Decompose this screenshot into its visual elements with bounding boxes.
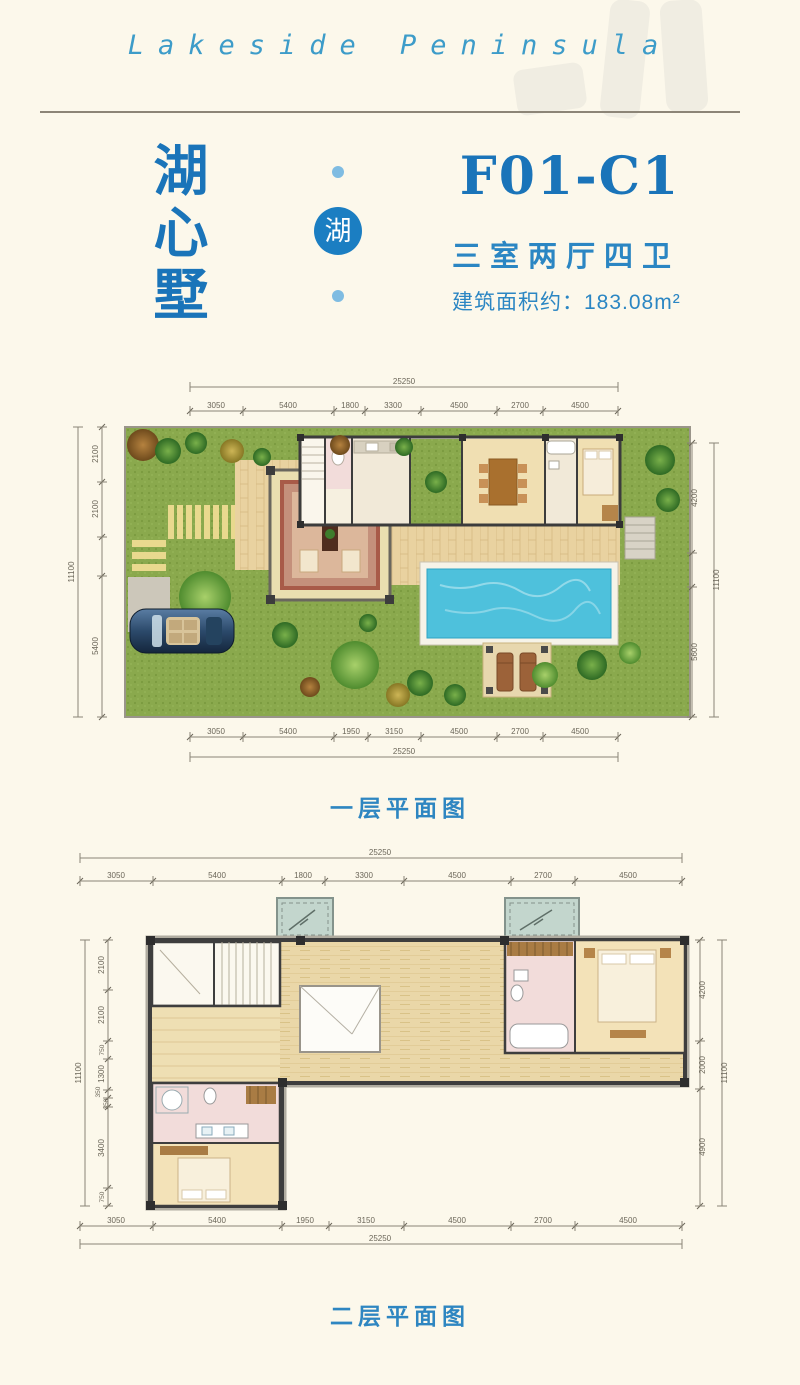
dim-label: 1950 xyxy=(342,727,360,736)
tree-icon xyxy=(330,435,350,455)
dim-total: 25250 xyxy=(369,848,392,857)
floor1-plan: 25250 3050 5400 1800 3300 4500 2700 4500… xyxy=(0,365,800,790)
tree-icon xyxy=(656,488,680,512)
dim-label: 4500 xyxy=(619,1216,637,1225)
dim-label: 350 xyxy=(103,1098,110,1109)
bedroom-suite-left xyxy=(152,1083,280,1206)
dim-label: 3400 xyxy=(97,1139,106,1157)
dim-label: 4500 xyxy=(448,1216,466,1225)
poster-page: Lakeside Peninsula 湖 心 墅 湖 F01-C1 三室两厅四卫… xyxy=(0,0,800,1385)
dim-label: 5400 xyxy=(208,871,226,880)
lake-badge-icon: 湖 xyxy=(314,207,362,255)
dim-label: 5400 xyxy=(91,637,100,655)
dim-label: 2700 xyxy=(511,727,529,736)
dim-label: 3050 xyxy=(107,871,125,880)
dim-label: 3050 xyxy=(107,1216,125,1225)
dim-label: 1800 xyxy=(294,871,312,880)
sink-icon xyxy=(514,970,528,981)
tree-icon xyxy=(155,438,181,464)
dim-label: 4900 xyxy=(698,1138,707,1156)
tree-icon xyxy=(272,622,298,648)
dim-label: 2100 xyxy=(97,956,106,974)
dim-total: 11100 xyxy=(720,1062,729,1084)
dim-label: 2700 xyxy=(511,401,529,410)
dim-label: 750 xyxy=(99,1191,106,1202)
dim-label: 2700 xyxy=(534,1216,552,1225)
dim-label: 5400 xyxy=(208,1216,226,1225)
wardrobe xyxy=(507,942,573,956)
dimension-lines-top: 25250 3050 5400 1800 3300 4500 2700 4500 xyxy=(77,848,685,886)
tree-icon xyxy=(444,684,466,706)
estate-name-vertical: 湖 心 墅 xyxy=(149,140,213,326)
dim-label: 5400 xyxy=(279,401,297,410)
bedroom-suite-right xyxy=(505,940,685,1053)
tv-cabinet xyxy=(160,1146,208,1155)
dim-label: 1800 xyxy=(341,401,359,410)
brand-title: Lakeside Peninsula xyxy=(0,30,800,61)
plant-icon xyxy=(325,529,335,539)
dim-label: 2000 xyxy=(698,1056,707,1074)
tree-icon xyxy=(185,432,207,454)
dim-label: 4500 xyxy=(448,871,466,880)
dimension-lines-right: 4200 2000 4900 11100 xyxy=(695,937,729,1209)
tree-icon xyxy=(127,429,159,461)
tree-icon xyxy=(407,670,433,696)
dim-label: 3150 xyxy=(357,1216,375,1225)
tree-icon xyxy=(359,614,377,632)
dim-label: 2100 xyxy=(91,500,100,518)
header-divider xyxy=(40,111,740,113)
bathtub-icon xyxy=(510,1024,568,1048)
floor1-caption: 一层平面图 xyxy=(0,789,800,823)
dim-label: 350 xyxy=(95,1086,102,1097)
dim-label: 750 xyxy=(99,1044,106,1055)
tree-icon xyxy=(619,642,641,664)
unit-code: F01-C1 xyxy=(448,146,692,207)
dim-label: 1950 xyxy=(296,1216,314,1225)
dimension-lines-right: 4200 5600 11100 xyxy=(687,440,721,720)
tree-icon xyxy=(220,439,244,463)
estate-name-char: 心 xyxy=(149,202,213,264)
dimension-lines-bottom: 3050 5400 1950 3150 4500 2700 4500 25250 xyxy=(187,727,621,762)
floor2-plan: 25250 3050 5400 1800 3300 4500 2700 4500… xyxy=(0,838,800,1273)
dim-label: 3300 xyxy=(384,401,402,410)
dim-label: 5400 xyxy=(279,727,297,736)
tree-icon xyxy=(300,677,320,697)
dim-label: 2100 xyxy=(91,445,100,463)
void-opening xyxy=(300,986,380,1052)
dimension-lines-left: 11100 2100 2100 5400 xyxy=(67,424,107,720)
dim-label: 4500 xyxy=(619,871,637,880)
tree-icon xyxy=(645,445,675,475)
building-area-text: 建筑面积约：183.08m² xyxy=(452,286,712,316)
swimming-pool xyxy=(420,562,618,645)
dim-total: 11100 xyxy=(74,1062,83,1084)
dim-label: 3050 xyxy=(207,401,225,410)
dining-room xyxy=(462,439,545,525)
estate-name-char: 墅 xyxy=(149,264,213,326)
toilet-icon xyxy=(204,1088,216,1104)
dim-label: 1300 xyxy=(97,1065,106,1083)
decorative-dot xyxy=(332,290,344,302)
staircase xyxy=(302,439,325,523)
car-icon xyxy=(130,609,234,653)
dim-label: 2100 xyxy=(97,1006,106,1024)
toilet-icon xyxy=(511,985,523,1001)
dim-total: 25250 xyxy=(393,377,416,386)
dimension-lines-bottom: 3050 5400 1950 3150 4500 2700 4500 25250 xyxy=(77,1216,685,1249)
skylight-icon xyxy=(505,898,579,940)
dim-total: 11100 xyxy=(67,561,76,583)
dimension-lines-top: 25250 3050 5400 1800 3300 4500 2700 4500 xyxy=(187,377,621,416)
skylight-icon xyxy=(277,898,333,940)
estate-name-char: 湖 xyxy=(149,140,213,202)
room-layout-text: 三室两厅四卫 xyxy=(452,233,692,275)
floor2-caption: 二层平面图 xyxy=(0,1297,800,1331)
dim-label: 5600 xyxy=(690,643,699,661)
dim-label: 3300 xyxy=(355,871,373,880)
dim-label: 4500 xyxy=(450,727,468,736)
tree-icon xyxy=(386,683,410,707)
tree-icon xyxy=(253,448,271,466)
dim-total: 11100 xyxy=(712,569,721,591)
watermark-figure xyxy=(512,61,588,116)
bathroom-2 xyxy=(545,439,577,525)
tree-icon xyxy=(331,641,379,689)
dim-total: 25250 xyxy=(393,747,416,756)
dim-total: 25250 xyxy=(369,1234,392,1243)
dim-label: 4500 xyxy=(571,727,589,736)
tree-icon xyxy=(577,650,607,680)
dim-label: 4200 xyxy=(690,489,699,507)
inner-courtyard xyxy=(410,439,462,525)
dimension-lines-left: 11100 2100 2100 750 1300 350 350 3400 75… xyxy=(74,937,113,1209)
dim-label: 4500 xyxy=(450,401,468,410)
dim-label: 3150 xyxy=(385,727,403,736)
stairwell xyxy=(152,942,280,1006)
dim-label: 4500 xyxy=(571,401,589,410)
tree-icon xyxy=(532,662,558,688)
dim-label: 2700 xyxy=(534,871,552,880)
decorative-dot xyxy=(332,166,344,178)
dim-label: 3050 xyxy=(207,727,225,736)
bedroom-floor1 xyxy=(577,439,620,525)
dim-label: 4200 xyxy=(698,981,707,999)
garden-steps xyxy=(625,517,655,559)
tree-icon xyxy=(425,471,447,493)
tree-icon xyxy=(395,438,413,456)
